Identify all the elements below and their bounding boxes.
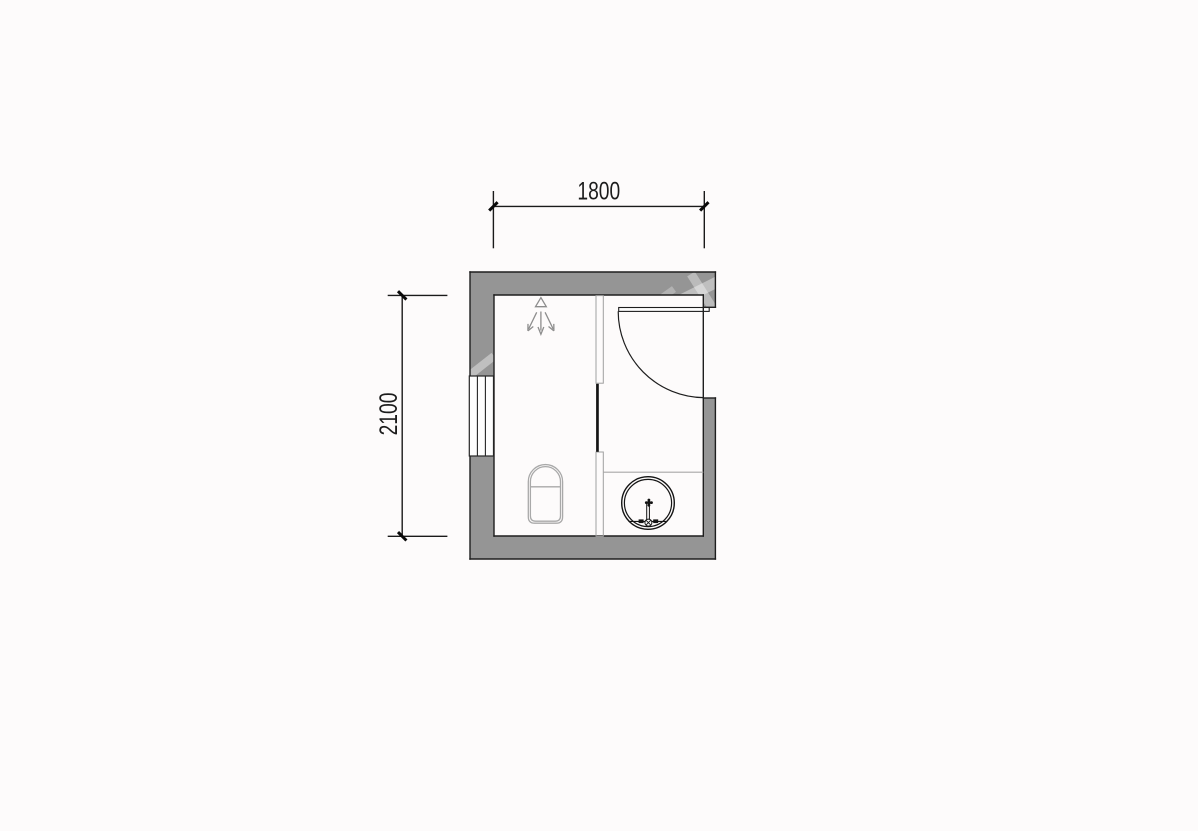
svg-text:1800: 1800 xyxy=(577,177,620,205)
svg-text:2100: 2100 xyxy=(374,393,402,436)
